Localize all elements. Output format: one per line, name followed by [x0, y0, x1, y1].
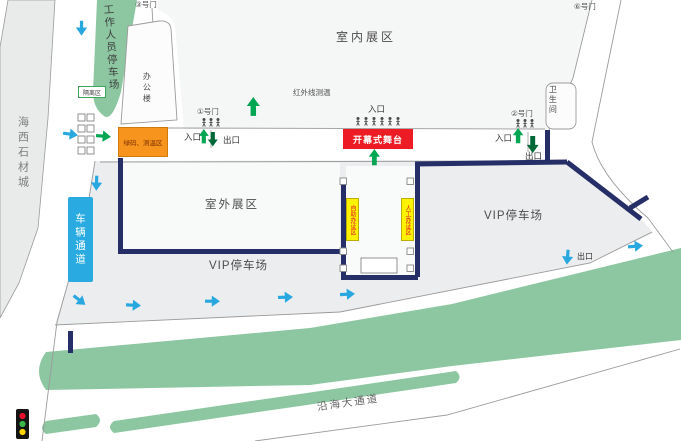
- isolation-zone-tag: 隔离区: [78, 86, 106, 98]
- green-down-arrow-icon: [208, 132, 218, 146]
- manual-badge-booth: 人工办证区: [401, 198, 414, 241]
- label-entrance-gate2: 入口: [495, 134, 512, 143]
- self-badge-label: 自助办证区: [348, 205, 357, 235]
- green-up-arrow-icon: [513, 128, 524, 143]
- booth: [361, 258, 397, 273]
- blue-arrow-icon: [76, 21, 87, 36]
- label-haixi-stone-city: 海西石材城: [16, 116, 28, 191]
- label-entrance-gate1: 入口: [184, 133, 201, 142]
- opening-stage-label: 开幕式舞台: [353, 133, 403, 146]
- label-vip-parking-main: VIP停车场: [209, 260, 268, 272]
- label-indoor-exhibition: 室内展区: [336, 31, 396, 44]
- label-restroom: 卫生间: [548, 85, 556, 115]
- vehicle-channel-label: 车辆通道: [73, 213, 88, 267]
- isolation-zone-label: 隔离区: [83, 88, 101, 97]
- green-right-arrow-icon: [96, 130, 112, 142]
- label-gate-2: ②号门: [511, 110, 533, 118]
- label-office-building: 办公楼: [142, 72, 150, 105]
- label-exit-southeast: 出口: [577, 253, 593, 261]
- label-entrance-stage: 入口: [368, 105, 385, 114]
- label-outdoor-exhibition: 室外展区: [205, 199, 259, 211]
- label-infrared-temp: 红外线测温: [293, 89, 331, 97]
- label-exit-gate1: 出口: [223, 136, 240, 145]
- label-gate-3: ③号门: [135, 1, 157, 9]
- map-shapes: [0, 0, 681, 441]
- venue-traffic-map: 车辆通道 绿码、测温区 开幕式舞台 自助办证区 人工办证区 隔离区 海西石材城 …: [0, 0, 681, 441]
- manual-badge-label: 人工办证区: [403, 205, 412, 235]
- self-badge-booth: 自助办证区: [346, 198, 359, 241]
- green-code-temp-checkpoint: 绿码、测温区: [118, 127, 168, 157]
- opening-stage: 开幕式舞台: [343, 129, 413, 149]
- label-exit-gate2: 出口: [525, 152, 542, 161]
- blue-arrow-icon: [62, 128, 78, 141]
- turnstile-icons: [78, 114, 94, 154]
- label-gate-1: ①号门: [197, 108, 219, 116]
- checkpoint-label: 绿码、测温区: [124, 137, 163, 147]
- traffic-light-icon: [16, 409, 29, 439]
- vehicle-channel-band: 车辆通道: [68, 197, 93, 282]
- label-gate-6: ⑥号门: [574, 3, 596, 11]
- label-vip-parking-east: VIP停车场: [484, 210, 543, 222]
- greenbelt-small: [42, 414, 100, 434]
